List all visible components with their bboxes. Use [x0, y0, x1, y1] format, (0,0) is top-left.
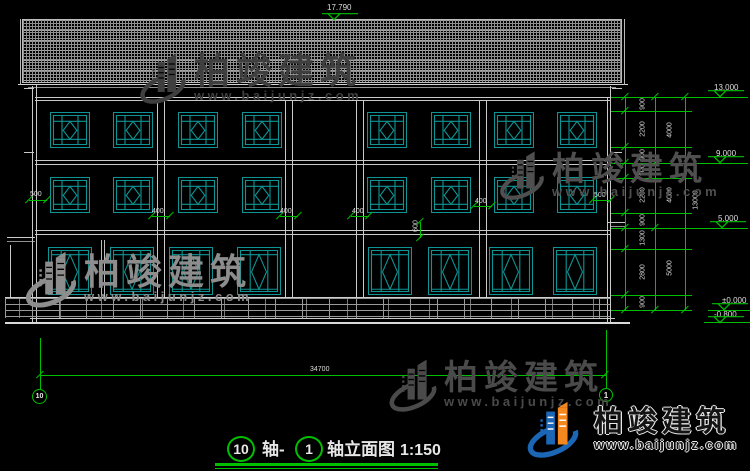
window	[367, 177, 407, 213]
window	[178, 112, 218, 148]
watermark-brand: 柏竣建筑	[194, 53, 362, 89]
level-marker-icon	[706, 90, 746, 98]
dim-chain-line	[685, 97, 686, 310]
dim-chain-line	[655, 97, 656, 310]
dim-tick	[416, 234, 424, 242]
line	[7, 237, 35, 238]
window	[50, 112, 90, 148]
title-scale: 1:150	[400, 441, 441, 461]
window	[494, 112, 534, 148]
window	[50, 177, 90, 213]
level-marker-icon	[708, 221, 748, 229]
dim-label: 900	[640, 98, 647, 110]
brand-logo-icon	[498, 148, 546, 202]
brand-logo-icon	[520, 398, 586, 460]
window	[113, 177, 153, 213]
line	[610, 86, 611, 322]
line	[624, 19, 625, 85]
dim-label: 2800	[640, 264, 647, 280]
brand-logo-icon	[388, 356, 438, 414]
window	[553, 247, 597, 295]
line	[363, 100, 364, 297]
title-underline-thin	[215, 468, 438, 469]
watermark-brand: 柏竣建筑	[84, 254, 252, 290]
dim-label: 2200	[640, 121, 647, 137]
axis-bubble-10: 10	[32, 389, 47, 404]
title-axis-bubble-1: 1	[295, 436, 323, 462]
window	[431, 177, 471, 213]
dim-label: 900	[640, 296, 647, 308]
line	[356, 100, 357, 297]
line	[612, 88, 622, 89]
dim-left-wall: 500	[30, 191, 42, 199]
watermark: 柏竣建筑 www.baijunjz.com	[24, 248, 252, 310]
line	[30, 318, 615, 319]
dim-col4: 400	[475, 198, 487, 206]
title-underline	[215, 463, 438, 466]
level-line	[704, 322, 750, 323]
line	[35, 230, 610, 231]
dim-label: 1300	[640, 230, 647, 246]
dim-label: 4000	[667, 122, 674, 138]
window	[242, 112, 282, 148]
line	[285, 100, 286, 297]
window	[428, 247, 472, 295]
line	[20, 19, 21, 85]
title-name: 轴立面图	[327, 440, 395, 460]
watermark-url: www.baijunjz.com	[552, 185, 720, 199]
window	[367, 112, 407, 148]
overall-width-label: 34700	[310, 366, 329, 374]
level-marker-icon	[320, 13, 360, 21]
watermark-url: www.baijunjz.com	[84, 290, 252, 304]
watermark-url: www.baijunjz.com	[194, 89, 362, 103]
window	[178, 177, 218, 213]
dim-col3: 400	[352, 208, 364, 216]
ridge-level-label: 17.790	[327, 4, 351, 12]
cad-elevation-canvas: 17.790 13.000 9.000 5.000 ±0.000 -0.800 …	[0, 0, 750, 471]
watermark: 柏竣建筑 www.baijunjz.com	[498, 148, 720, 202]
window	[431, 112, 471, 148]
window	[242, 177, 282, 213]
dim-mid-sill: 600	[413, 220, 420, 232]
window	[489, 247, 533, 295]
brand-logo: 柏竣建筑 www.baijunjz.com	[520, 398, 738, 460]
brand-logo-text: 柏竣建筑	[594, 407, 738, 437]
line	[35, 234, 610, 235]
brand-logo-icon	[138, 50, 188, 106]
line	[292, 100, 293, 297]
brand-logo-url: www.baijunjz.com	[594, 437, 738, 452]
window	[557, 112, 597, 148]
dim-col1: 400	[152, 208, 164, 216]
watermark: 柏竣建筑 www.baijunjz.com	[138, 50, 362, 106]
watermark-brand: 柏竣建筑	[552, 152, 720, 185]
line	[7, 241, 35, 242]
window	[113, 112, 153, 148]
brand-logo-icon	[24, 248, 78, 310]
line	[607, 97, 608, 322]
line	[5, 322, 630, 324]
window	[368, 247, 412, 295]
dim-chain-line	[625, 97, 626, 310]
dim-leader-left	[40, 338, 41, 390]
dim-col2: 400	[280, 208, 292, 216]
title-axis-bubble-10: 10	[227, 436, 255, 462]
title-joiner: 轴-	[262, 440, 285, 460]
dim-label: 900	[640, 214, 647, 226]
line	[10, 245, 11, 297]
watermark-brand: 柏竣建筑	[444, 361, 612, 395]
dim-label: 5000	[667, 260, 674, 276]
